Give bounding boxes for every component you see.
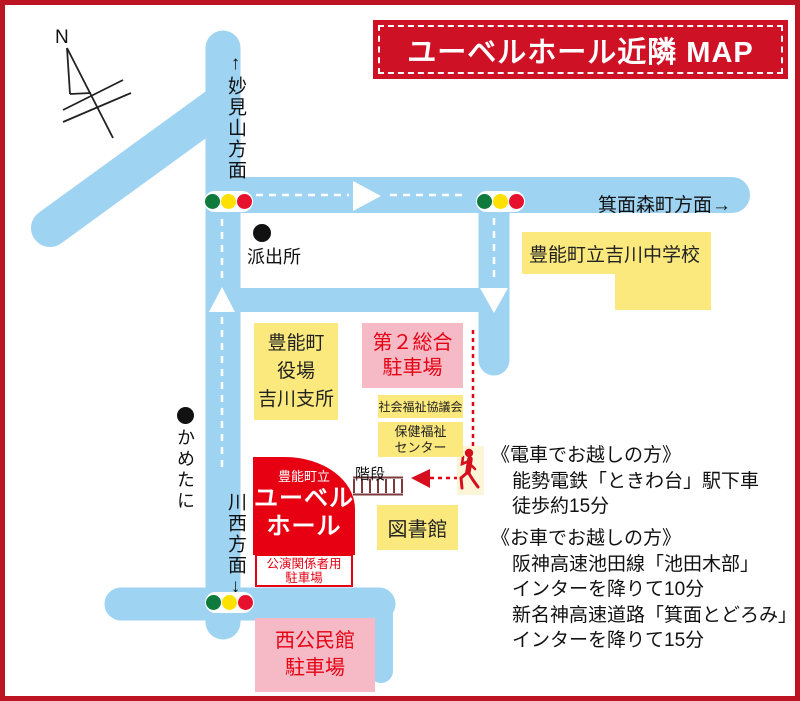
signal-red [509,194,524,209]
hall-prefix: 豊能町立 [278,469,330,485]
access-by-car: 《お車でお越しの方》 阪神高速池田線「池田木部」 インターを降りて10分 新名神… [491,526,800,654]
diagonal-road [50,103,222,228]
school-box: 豊能町立吉川中学校 [522,232,711,274]
access-train-heading: 《電車でお越しの方》 [491,443,800,469]
signal-red [238,595,253,610]
town-office-line: 役場 [277,358,315,386]
library-box: 図書館 [377,505,458,550]
arrow-east-icon [353,181,381,211]
health-center-line: センター [394,440,446,456]
compass-icon [63,48,131,138]
road-label-kawanishi: 川西方面↓ [212,492,245,599]
police-box-label: 派出所 [247,243,301,269]
general-parking-line: 駐車場 [383,356,443,381]
town-office-line: 豊能町 [267,330,324,358]
map-title: ユーベルホール近隣 MAP [378,25,783,74]
map-title-box: ユーベルホール近隣 MAP [373,20,788,79]
neighborhood-map: ユーベルホール近隣 MAP N ↑妙見山方面 箕面森町方面→ 川西方面↓ 派出所… [0,0,800,701]
signal-green [477,194,492,209]
arrow-south-icon [480,288,508,313]
access-car-line: 新名神高速道路「箕面とどろみ」 [491,603,800,629]
kametani-dot [177,407,194,424]
road-label-myokenzan: ↑妙見山方面 [212,53,245,181]
access-car-line: インターを降りて10分 [491,577,800,603]
signal-green [205,194,220,209]
library-label: 図書館 [388,513,448,542]
signal-yellow [222,595,237,610]
community-parking-line: 西公民館 [275,628,355,655]
access-car-line: 阪神高速池田線「池田木部」 [491,552,800,578]
community-parking-box: 西公民館 駐車場 [255,618,375,692]
access-car-line: インターを降りて15分 [491,628,800,654]
police-box-dot [253,224,271,242]
school-label: 豊能町立吉川中学校 [529,240,700,267]
stairs-label: 階段 [355,463,385,484]
juvel-hall-box: 豊能町立 ユーベル ホール [253,457,355,555]
traffic-light-icon [476,191,525,212]
general-parking-box: 第２総合 駐車場 [362,323,463,388]
community-parking-line: 駐車場 [285,655,345,682]
traffic-light-icon [204,191,253,212]
access-car-heading: 《お車でお越しの方》 [491,526,800,552]
hall-name-line: ユーベル [254,485,354,513]
signal-yellow [493,194,508,209]
compass-north-label: N [55,27,69,49]
general-parking-line: 第２総合 [373,331,453,356]
traffic-light-icon [205,592,254,613]
signal-red [237,194,252,209]
road-label-minoh-shinmachi: 箕面森町方面→ [598,190,731,217]
school-box-extension [615,274,711,310]
kametani-label: かめたに [176,428,194,512]
access-train-line: 能勢電鉄「ときわ台」駅下車 [491,469,800,495]
town-office-box: 豊能町 役場 吉川支所 [254,323,338,420]
signal-green [206,595,221,610]
hall-name-line: ホール [267,513,342,541]
walking-route-arrow-icon [411,469,430,488]
performers-parking-box: 公演関係者用 駐車場 [255,554,353,587]
access-by-train: 《電車でお越しの方》 能勢電鉄「ときわ台」駅下車 徒歩約15分 [491,443,800,520]
welfare-council-label: 社会福祉協議会 [378,398,462,415]
health-center-box: 保健福祉 センター [378,422,463,457]
access-train-line: 徒歩約15分 [491,494,800,520]
town-office-line: 吉川支所 [258,386,334,414]
performers-parking-line: 駐車場 [285,571,323,585]
welfare-council-box: 社会福祉協議会 [378,395,463,418]
signal-yellow [221,194,236,209]
arrow-north-icon [209,287,235,312]
health-center-line: 保健福祉 [394,424,446,440]
performers-parking-line: 公演関係者用 [266,557,341,571]
